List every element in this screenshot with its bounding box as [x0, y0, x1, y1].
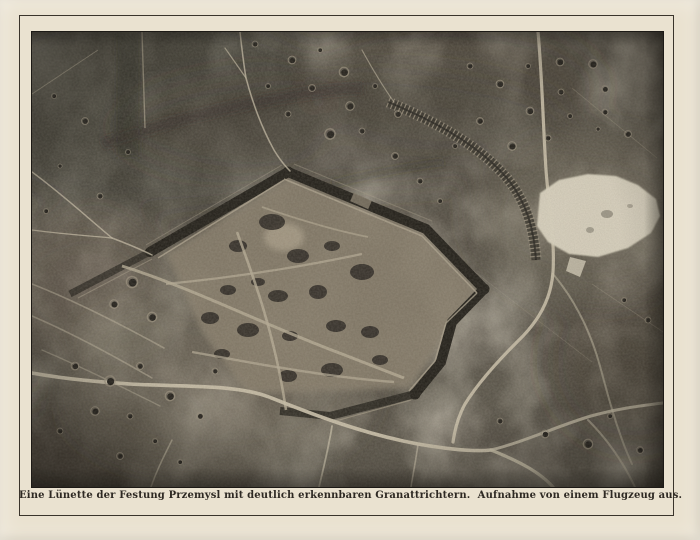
aerial-photo-canvas: [32, 32, 663, 487]
aerial-photograph: [32, 32, 663, 487]
edge-shadow-right: [644, 32, 663, 487]
edge-shadow-top: [32, 32, 663, 46]
edge-shadow-bottom: [32, 468, 663, 487]
photo-caption: Eine Lünette der Festung Przemysl mit de…: [19, 489, 676, 503]
vignette: [32, 32, 663, 487]
